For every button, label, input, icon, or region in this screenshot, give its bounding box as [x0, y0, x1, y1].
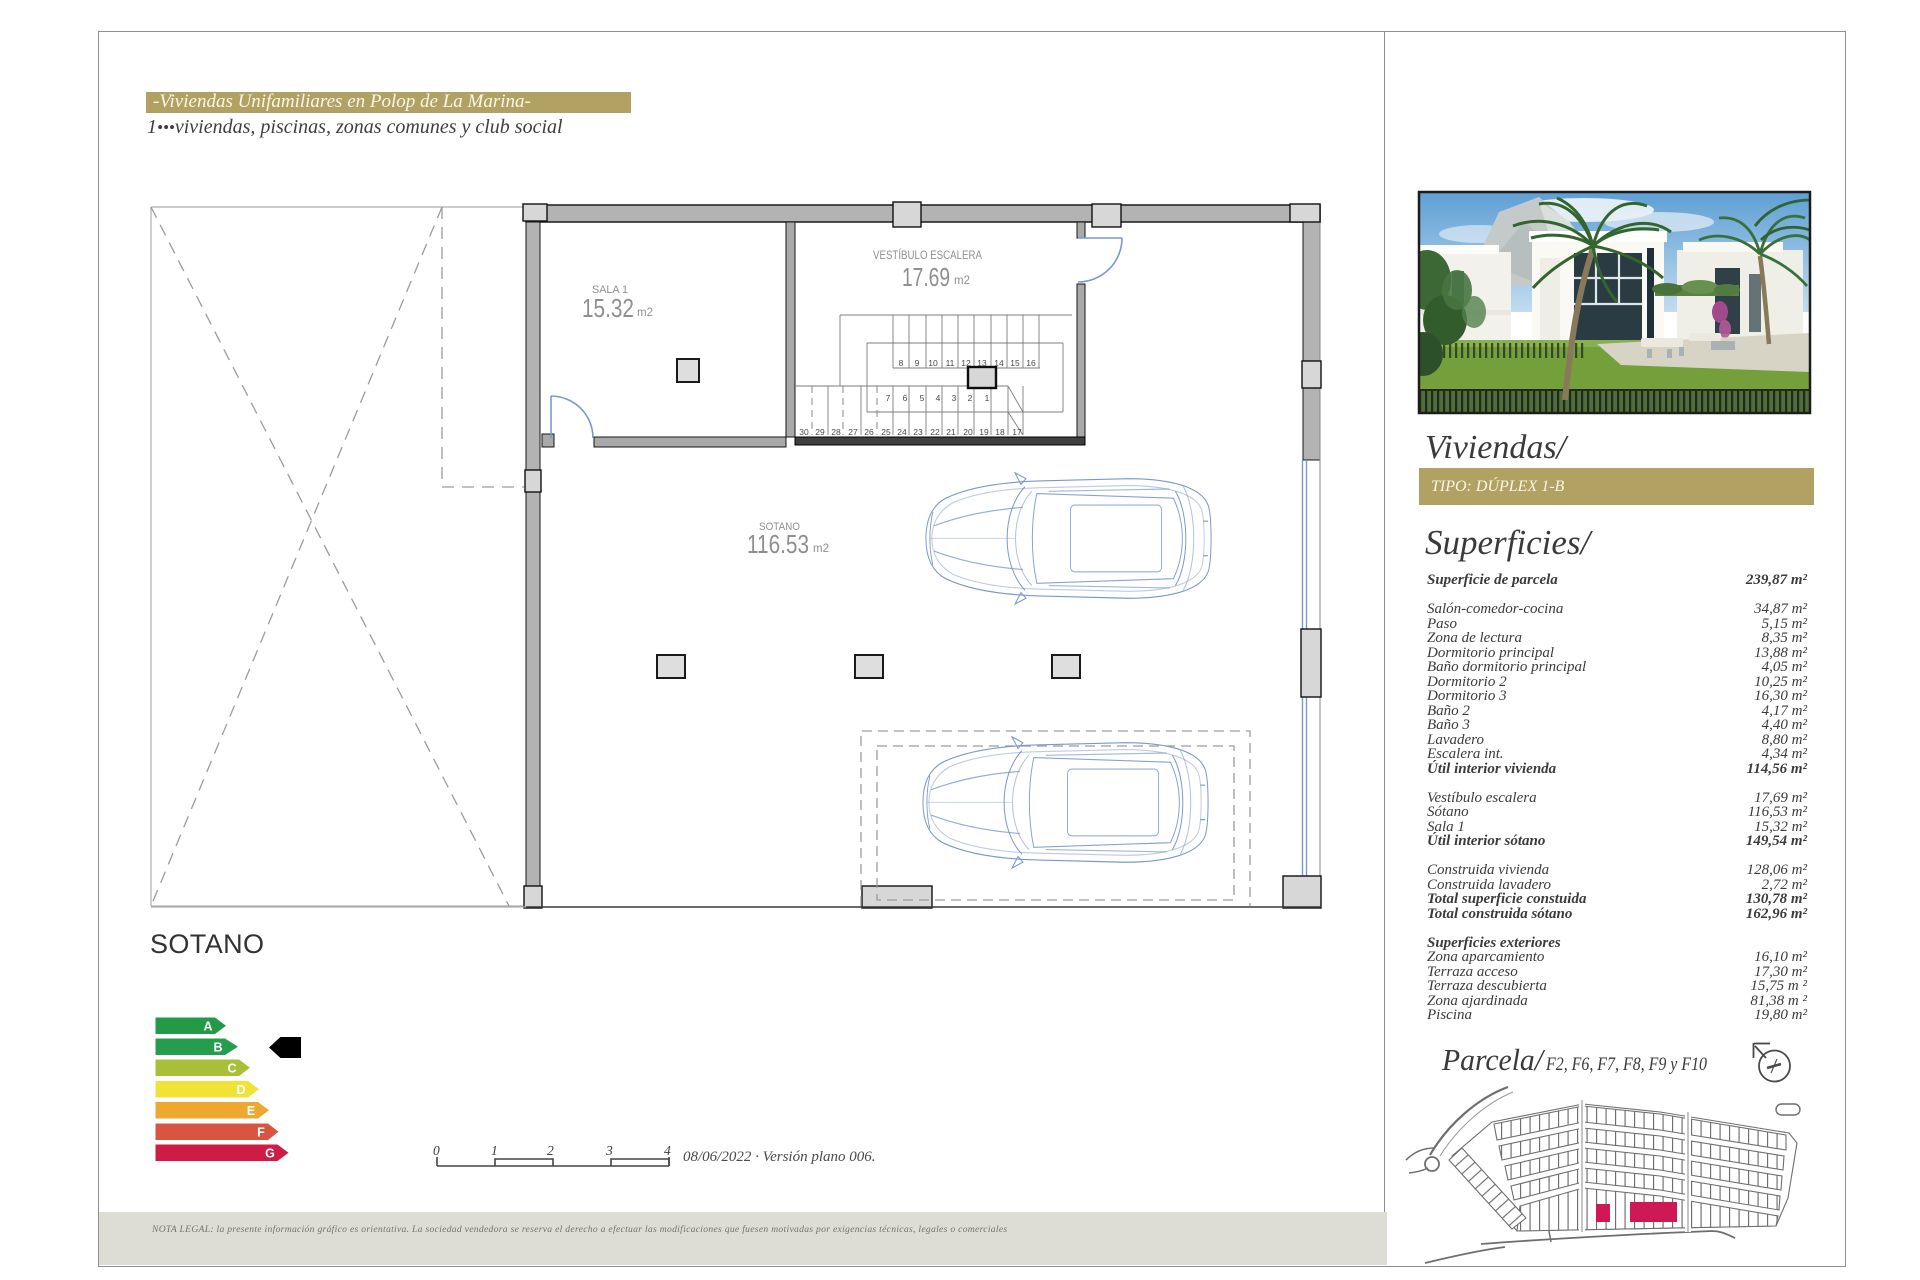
svg-text:15.32: 15.32: [582, 293, 634, 323]
svg-text:14: 14: [994, 358, 1004, 368]
svg-text:D: D: [236, 1083, 245, 1097]
svg-text:6: 6: [903, 393, 908, 403]
svg-text:13: 13: [977, 358, 987, 368]
svg-text:G: G: [265, 1147, 275, 1161]
svg-text:m2: m2: [637, 307, 653, 319]
svg-text:4: 4: [664, 1143, 671, 1158]
svg-text:30: 30: [799, 427, 809, 437]
svg-text:1: 1: [491, 1143, 498, 1158]
svg-text:m2: m2: [954, 275, 970, 287]
svg-text:28: 28: [831, 427, 841, 437]
svg-text:7: 7: [886, 393, 891, 403]
svg-text:116.53: 116.53: [747, 529, 809, 559]
svg-text:VESTÍBULO ESCALERA: VESTÍBULO ESCALERA: [873, 247, 982, 262]
svg-text:1: 1: [985, 393, 990, 403]
svg-text:5: 5: [920, 393, 925, 403]
svg-text:12: 12: [961, 358, 971, 368]
svg-text:29: 29: [815, 427, 825, 437]
svg-text:B: B: [213, 1041, 222, 1055]
svg-text:A: A: [203, 1020, 212, 1034]
svg-text:23: 23: [913, 427, 923, 437]
svg-text:4: 4: [936, 393, 941, 403]
svg-text:F: F: [257, 1126, 265, 1140]
svg-text:Parcela/: Parcela/: [1441, 1042, 1545, 1077]
svg-text:20: 20: [963, 427, 973, 437]
svg-text:10: 10: [928, 358, 938, 368]
svg-text:16: 16: [1026, 358, 1036, 368]
svg-text:E: E: [247, 1104, 255, 1118]
svg-text:19: 19: [979, 427, 989, 437]
svg-text:21: 21: [946, 427, 956, 437]
svg-text:18: 18: [995, 427, 1005, 437]
svg-text:2: 2: [547, 1143, 554, 1158]
svg-text:24: 24: [897, 427, 907, 437]
svg-text:26: 26: [864, 427, 874, 437]
svg-text:9: 9: [915, 358, 920, 368]
svg-text:15: 15: [1010, 358, 1020, 368]
svg-text:17: 17: [1012, 427, 1022, 437]
svg-text:m2: m2: [813, 543, 829, 555]
svg-text:25: 25: [881, 427, 891, 437]
svg-text:C: C: [227, 1062, 236, 1076]
svg-text:22: 22: [930, 427, 940, 437]
svg-text:3: 3: [605, 1143, 613, 1158]
svg-text:11: 11: [946, 358, 955, 368]
svg-text:27: 27: [848, 427, 858, 437]
svg-text:F2, F6, F7, F8, F9 y F10: F2, F6, F7, F8, F9 y F10: [1545, 1055, 1708, 1075]
svg-text:2: 2: [968, 393, 973, 403]
svg-text:8: 8: [899, 358, 904, 368]
svg-text:3: 3: [952, 393, 957, 403]
svg-text:17.69: 17.69: [902, 262, 950, 292]
svg-text:0: 0: [433, 1143, 440, 1158]
